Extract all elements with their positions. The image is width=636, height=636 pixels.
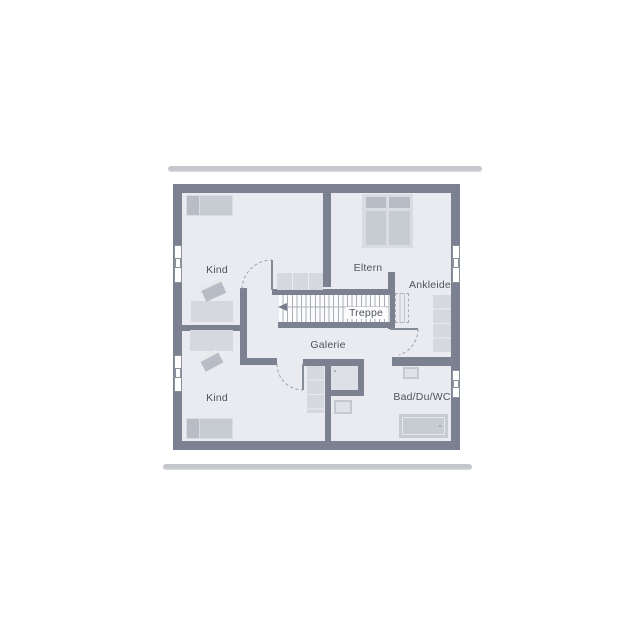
wall-stairs-lower (278, 322, 390, 328)
window-pane (453, 258, 459, 268)
pillow (366, 197, 386, 208)
room-label-ankleide: Ankleide (409, 279, 451, 291)
double-bed-eltern (362, 194, 413, 248)
mattress (200, 196, 232, 215)
sideboard-above-stairs (277, 273, 323, 290)
floor-plan-canvas: Kind Eltern Ankleide Treppe Galerie Kind… (0, 0, 636, 636)
shower-drain (334, 370, 336, 372)
room-label-eltern: Eltern (354, 262, 383, 274)
room-label-kind-top: Kind (206, 264, 228, 276)
cabinet-kind-bottom (307, 366, 324, 413)
door-leaf-kind-bottom (302, 364, 304, 390)
desk-kind-top (191, 301, 233, 322)
window-pane (175, 368, 181, 378)
door-leaf-bad (390, 328, 418, 330)
top-separator-bar (168, 166, 482, 172)
room-label-bad-du-wc: Bad/Du/WC (393, 391, 450, 403)
wall-kind-eltern (323, 193, 331, 287)
bed-kind-top (186, 195, 233, 216)
pillow (187, 196, 199, 215)
room-label-galerie: Galerie (310, 339, 345, 351)
shower (331, 366, 358, 390)
window-kind-top (174, 245, 182, 283)
wardrobe-ankleide (433, 295, 451, 353)
room-label-treppe: Treppe (346, 307, 386, 319)
pillow (389, 197, 410, 208)
wall-galerie-kind-left (240, 358, 277, 365)
window-eltern (452, 245, 460, 283)
dresser-kind-bottom (190, 330, 233, 351)
mattress (389, 211, 410, 245)
mattress (200, 419, 232, 438)
washbasin-bad (403, 367, 419, 379)
basin-bowl (405, 369, 417, 377)
bathtub-drain (439, 425, 441, 427)
wall-bad-top (392, 357, 451, 366)
mattress (366, 211, 386, 245)
bed-kind-bottom (186, 418, 233, 439)
wall-galerie-shower-top (303, 359, 364, 366)
pillow (187, 419, 199, 438)
basin-bowl (336, 402, 350, 412)
window-pane (453, 380, 459, 388)
washbasin-center (334, 400, 352, 414)
stairs-cut-dashed (395, 293, 409, 323)
floor-plan-upper-storey: Kind Eltern Ankleide Treppe Galerie Kind… (173, 184, 460, 450)
door-leaf-kind-top (271, 260, 273, 290)
window-kind-bottom (174, 355, 182, 392)
bathtub (399, 414, 448, 438)
bottom-separator-bar (163, 464, 472, 470)
wall-center-vertical (240, 288, 247, 362)
room-label-kind-bottom: Kind (206, 392, 228, 404)
wall-shower-bottom (325, 390, 364, 396)
window-bad (452, 370, 460, 398)
window-pane (175, 258, 181, 268)
